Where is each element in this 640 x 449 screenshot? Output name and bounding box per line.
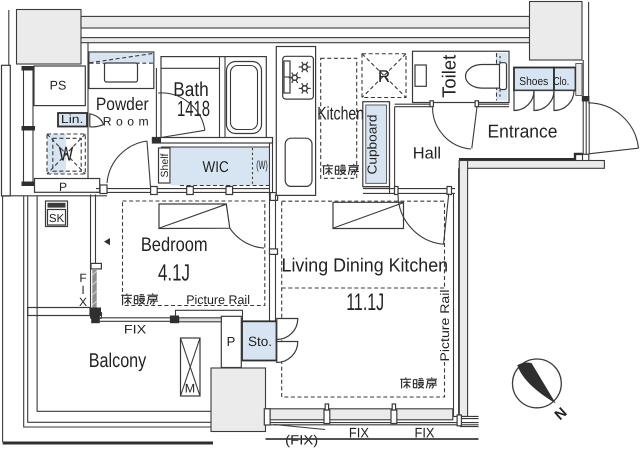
svg-text:Shelf: Shelf [159, 153, 171, 177]
svg-text:(W): (W) [256, 158, 268, 172]
svg-text:11.1J: 11.1J [346, 289, 384, 316]
svg-text:SK: SK [49, 213, 65, 225]
svg-text:Entrance: Entrance [488, 121, 558, 142]
svg-text:P: P [227, 334, 236, 349]
svg-text:Picture Rail: Picture Rail [186, 293, 250, 307]
svg-text:Kitchen: Kitchen [317, 103, 364, 124]
svg-text:Balcony: Balcony [89, 350, 147, 372]
svg-text:Bedroom: Bedroom [141, 234, 208, 256]
svg-text:Hall: Hall [413, 144, 441, 162]
svg-text:Sto.: Sto. [248, 334, 272, 349]
svg-text:Picture Rail: Picture Rail [438, 290, 452, 362]
svg-text:Powder: Powder [96, 94, 149, 114]
svg-text:Clo.: Clo. [553, 76, 569, 88]
svg-text:(FIX): (FIX) [285, 433, 318, 448]
svg-text:FIX: FIX [124, 322, 146, 336]
svg-text:X: X [79, 295, 87, 309]
svg-text:P: P [59, 180, 67, 194]
svg-text:M: M [185, 382, 195, 396]
svg-text:Lin.: Lin. [61, 113, 84, 126]
svg-text:Living Dining Kitchen: Living Dining Kitchen [282, 255, 449, 276]
svg-text:PS: PS [50, 79, 67, 93]
svg-text:Toilet: Toilet [440, 54, 461, 98]
svg-text:W: W [59, 143, 74, 165]
svg-text:4.1J: 4.1J [158, 260, 190, 286]
svg-text:R: R [378, 67, 390, 86]
svg-text:WIC: WIC [203, 159, 229, 176]
svg-text:1418: 1418 [177, 96, 210, 121]
svg-text:Shoes: Shoes [519, 76, 548, 88]
svg-text:Cupboard: Cupboard [365, 115, 380, 175]
